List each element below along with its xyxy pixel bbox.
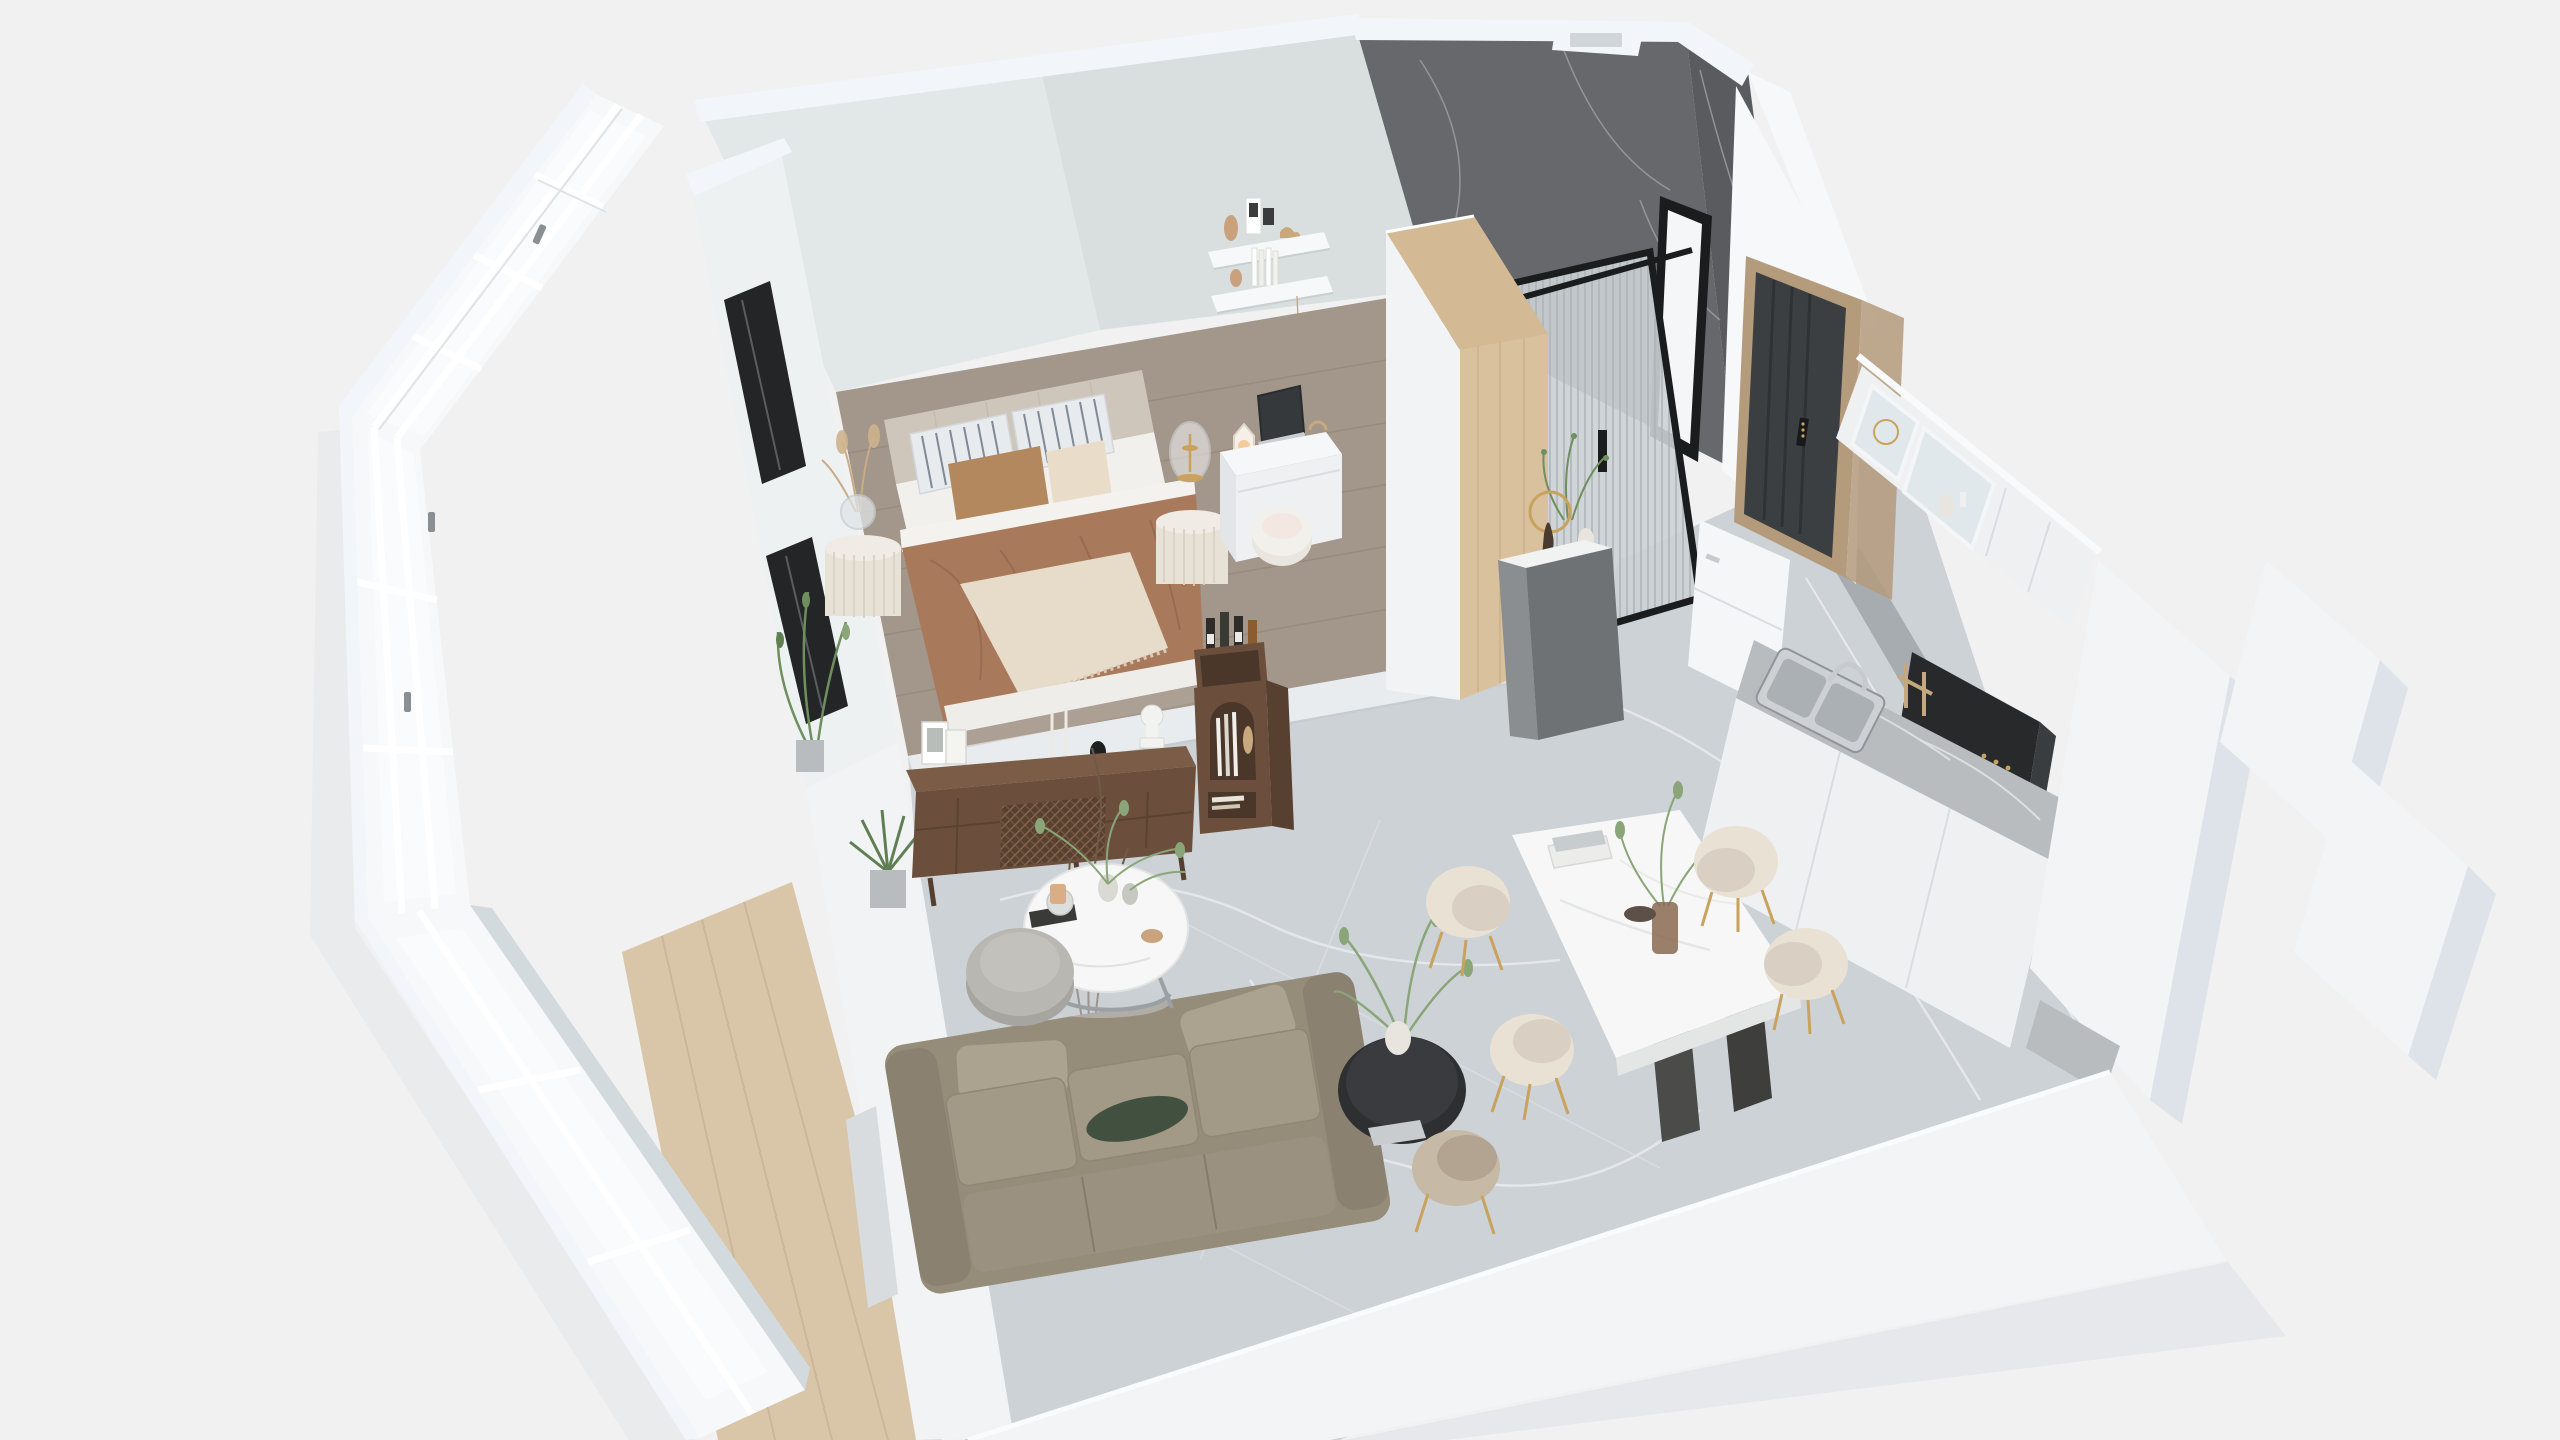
glass-cabinet-door-1 — [1852, 386, 1918, 480]
background — [0, 0, 2560, 1440]
shower-enclosure — [1398, 250, 1700, 656]
glass-cabinet-door-2 — [1904, 428, 1994, 548]
lower-cabinets — [1694, 698, 2054, 1048]
console-front — [912, 766, 1196, 878]
wood-utensil-rack — [1898, 664, 1932, 716]
kitchen — [1688, 356, 2100, 1048]
sofa-arm-right — [1300, 969, 1391, 1212]
faucet — [1829, 659, 1871, 697]
dining-table — [1512, 781, 1801, 1142]
mattress — [896, 432, 1200, 710]
duvet-folds — [930, 520, 1180, 680]
entry-door — [1734, 256, 1862, 578]
nightstand-right — [1156, 422, 1228, 586]
cabinet-vase — [1938, 494, 1954, 518]
nightstand-left — [822, 424, 901, 618]
black-framed-window-slit-2 — [766, 537, 848, 724]
bathroom-mirror — [1650, 196, 1712, 462]
bust-sculpture — [1140, 705, 1164, 748]
headboard — [884, 370, 1154, 484]
dining-chair — [1764, 928, 1848, 1034]
coffee-table — [1024, 800, 1188, 1018]
arch-opening-books — [1210, 702, 1256, 780]
dried-branch-planter — [1062, 748, 1128, 1118]
picture-frame — [922, 722, 948, 764]
platform-step-edge — [908, 636, 1596, 790]
dark-marble-veins — [1420, 40, 1770, 400]
black-side-table — [1334, 909, 1473, 1146]
kitchen-sink — [1754, 633, 1894, 755]
console-vase — [1578, 528, 1594, 552]
book-stack — [1548, 836, 1612, 868]
glass-dome-lamp — [1170, 422, 1210, 482]
floating-shelf-upper — [1208, 232, 1330, 268]
media-console — [906, 705, 1196, 906]
quilted-cream-cushion — [1046, 440, 1112, 508]
mug — [1050, 884, 1066, 904]
entry — [1722, 72, 1904, 600]
window-wall — [339, 84, 810, 1440]
sofa-bolster-pillow — [1177, 982, 1298, 1067]
shelf-decor-objects — [1224, 198, 1300, 241]
inner-wall-living — [806, 742, 1014, 1440]
countertop — [1736, 640, 2072, 862]
sofa-bolster-pillow — [956, 1039, 1069, 1100]
rattan-mesh-panel — [1000, 796, 1106, 868]
wardrobe-front-white — [1386, 232, 1460, 700]
pampas-vase — [822, 424, 880, 529]
table-centerpiece — [1548, 781, 1729, 954]
window-wall-lower — [355, 905, 810, 1440]
black-vase — [1090, 741, 1106, 763]
mattress-foot — [944, 658, 1202, 734]
camel-velvet-cushion — [948, 446, 1050, 530]
entry-wall-cap — [1748, 72, 1878, 330]
amber-glass-vase — [1652, 902, 1678, 954]
dining-chair — [1490, 1014, 1574, 1120]
wine-bottles — [1206, 612, 1257, 650]
grey-tan-chair — [1412, 1130, 1500, 1234]
silver-cube-pot — [870, 870, 906, 908]
floorplan-render-canvas — [0, 0, 2560, 1440]
shelf-books — [1230, 248, 1278, 287]
dining-chairs — [1412, 826, 1848, 1234]
desk — [1220, 386, 1342, 562]
sofa — [882, 969, 1393, 1296]
wardrobe-side-oak — [1460, 334, 1548, 700]
cabinet-gold-ring — [1874, 420, 1898, 444]
outer-floor-slab — [968, 1072, 2226, 1440]
marble-veins — [1000, 700, 1980, 1200]
console-plant — [1541, 433, 1609, 520]
saucer — [1047, 889, 1073, 915]
dining-table-top — [1512, 810, 1800, 1058]
console-top — [1498, 540, 1612, 568]
entry-side-panel — [1846, 300, 1904, 600]
kitchen-floor-border-strip — [1830, 548, 2152, 1060]
balcony-wood-floor — [0, 0, 942, 1440]
wall-opening — [846, 1106, 898, 1308]
range-hood — [1900, 652, 2056, 806]
green-accent-pillow — [1082, 1087, 1192, 1150]
hanging-star-ornament — [1288, 296, 1308, 338]
window-handle — [532, 224, 547, 245]
ring-light-sculpture — [1530, 492, 1570, 532]
shower-handle — [1598, 430, 1607, 472]
mini-house-lamp — [1234, 424, 1254, 456]
dining-chair — [1694, 826, 1778, 932]
bathroom — [1350, 18, 1802, 656]
seat-cushion — [945, 1076, 1079, 1187]
plants-by-window — [776, 592, 920, 908]
table-legs — [1040, 978, 1172, 1012]
marble-end-ledge — [2026, 1000, 2120, 1094]
appliance-cabinet — [1688, 520, 1790, 710]
right-outer-walls — [2026, 560, 2496, 1124]
striped-pillows — [910, 394, 1114, 494]
tile-joints — [1020, 820, 1660, 1388]
arched-bookshelf — [1194, 612, 1294, 834]
window-wall-middle — [339, 406, 470, 920]
window-handle — [404, 692, 411, 712]
bedroom-platform-floor — [836, 286, 1586, 756]
living-marble-floor — [908, 432, 2152, 1440]
arch-ornament — [1310, 422, 1326, 430]
table-leg-panel — [1722, 976, 1772, 1112]
seat-cushion — [1188, 1028, 1322, 1139]
sofa-backrest — [961, 1134, 1337, 1274]
smart-lock — [1796, 418, 1809, 447]
appliance-label — [1705, 554, 1720, 564]
bedroom-wall-shelves — [1208, 198, 1333, 338]
bed — [884, 370, 1206, 750]
table-leg-panel — [1650, 1002, 1700, 1142]
figurine — [1542, 522, 1554, 556]
roof-niche — [1552, 24, 1644, 56]
laptop — [1258, 386, 1308, 456]
wardrobe-top-oak — [1386, 216, 1548, 350]
sheet-fold — [900, 478, 1196, 552]
console-legs — [930, 852, 1184, 906]
wardrobe — [1386, 216, 1548, 700]
magazine — [1368, 1120, 1426, 1146]
white-vase — [1385, 1021, 1411, 1055]
desk-stool — [1252, 508, 1312, 566]
vase — [1098, 874, 1118, 902]
dark-book — [1029, 904, 1077, 928]
seat-cushion — [1066, 1052, 1200, 1163]
window-handle — [428, 512, 435, 532]
console-top-face — [906, 746, 1196, 792]
floor-plank-lines — [848, 344, 1565, 696]
shell-bowl — [1141, 929, 1163, 943]
shower-top-rail — [1398, 250, 1692, 332]
apartment-3d-render — [0, 0, 2560, 1440]
hall-console — [1498, 433, 1624, 740]
ottoman — [966, 928, 1074, 1026]
marble-wall-right — [1686, 32, 1802, 486]
coffee-table-items — [1029, 800, 1186, 943]
bedroom-back-wall — [694, 14, 1458, 392]
window-wall-upper — [339, 84, 664, 450]
inner-wall-bedroom — [686, 138, 898, 788]
desk-top — [1220, 432, 1342, 476]
door-frame-tan — [1734, 256, 1862, 578]
bathroom-wall-cap — [1350, 18, 1688, 42]
picture-frame — [946, 730, 966, 764]
dining-chair — [1426, 866, 1510, 976]
black-framed-window-slit-1 — [724, 281, 806, 484]
door-leaf — [1744, 272, 1846, 558]
sofa-arm-left — [883, 1045, 974, 1288]
door-grooves — [1764, 280, 1810, 534]
lower-shelf — [1208, 792, 1256, 818]
exterior-shadows — [310, 430, 2286, 1440]
gas-cooktop — [1862, 792, 2045, 934]
marble-wall-left — [1356, 28, 1736, 470]
eucalyptus-branches — [1038, 806, 1186, 890]
spiky-plant — [850, 810, 920, 872]
brown-duvet — [902, 494, 1204, 724]
upper-cabinets — [1836, 356, 2100, 628]
cream-throw — [960, 552, 1168, 700]
console-decor — [922, 705, 1164, 764]
dark-bowl — [1624, 906, 1656, 922]
floating-shelf-lower — [1211, 276, 1333, 312]
side-table-plant — [1334, 916, 1470, 1036]
plant-pot — [796, 740, 824, 772]
vase — [1122, 883, 1138, 905]
